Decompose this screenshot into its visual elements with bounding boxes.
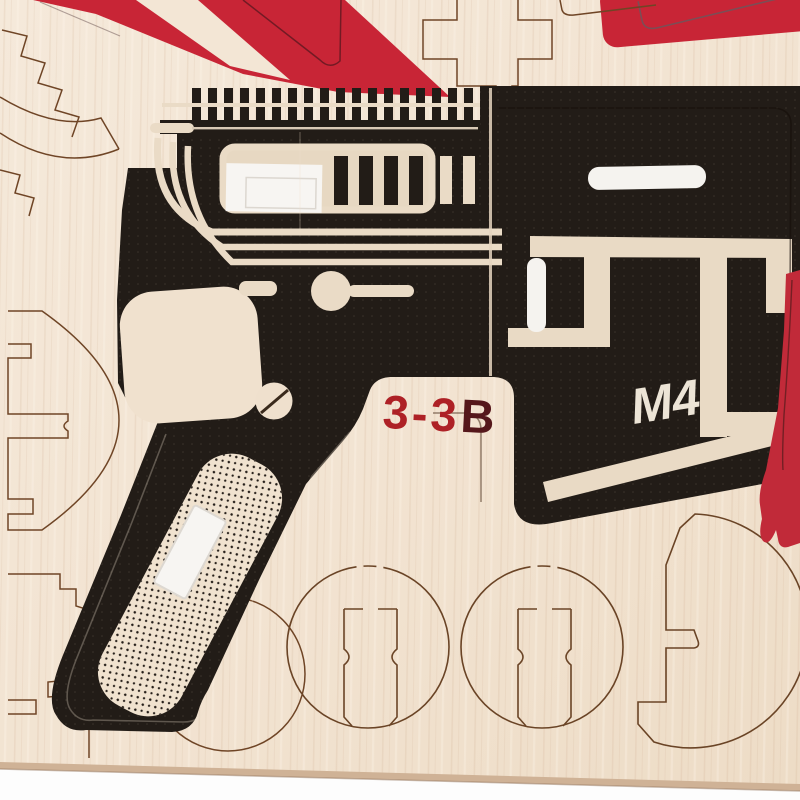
white-sticker-port: [226, 163, 323, 213]
rail-base-gap: [150, 123, 194, 133]
trigger-guard-opening: [118, 284, 265, 425]
model-mark-text: M4: [627, 369, 704, 435]
product-photo-wooden-puzzle-sheet: 3-3B M4: [0, 0, 800, 800]
slat-gap-outside-frame: [440, 156, 452, 204]
port-slat: [409, 156, 423, 205]
port-slat: [334, 156, 348, 205]
part-code-suffix: B: [459, 389, 499, 444]
puzzle-sheet-photo: 3-3B M4: [0, 0, 800, 800]
picatinny-rail-teeth: [150, 88, 480, 134]
slat-gap-outside-frame: [463, 156, 475, 204]
port-slat: [359, 156, 373, 205]
panel-split-gap: [489, 88, 492, 376]
screw-head-piece: [256, 383, 293, 420]
dash-mark: [239, 281, 277, 296]
port-slat: [384, 156, 398, 205]
part-code-prefix: 3-3: [381, 385, 461, 442]
slot-cutout-top: [588, 165, 706, 190]
part-code-text: 3-3B: [381, 385, 499, 444]
cut-through-teeth: [162, 103, 480, 107]
slot-cutout-vertical: [527, 258, 546, 332]
